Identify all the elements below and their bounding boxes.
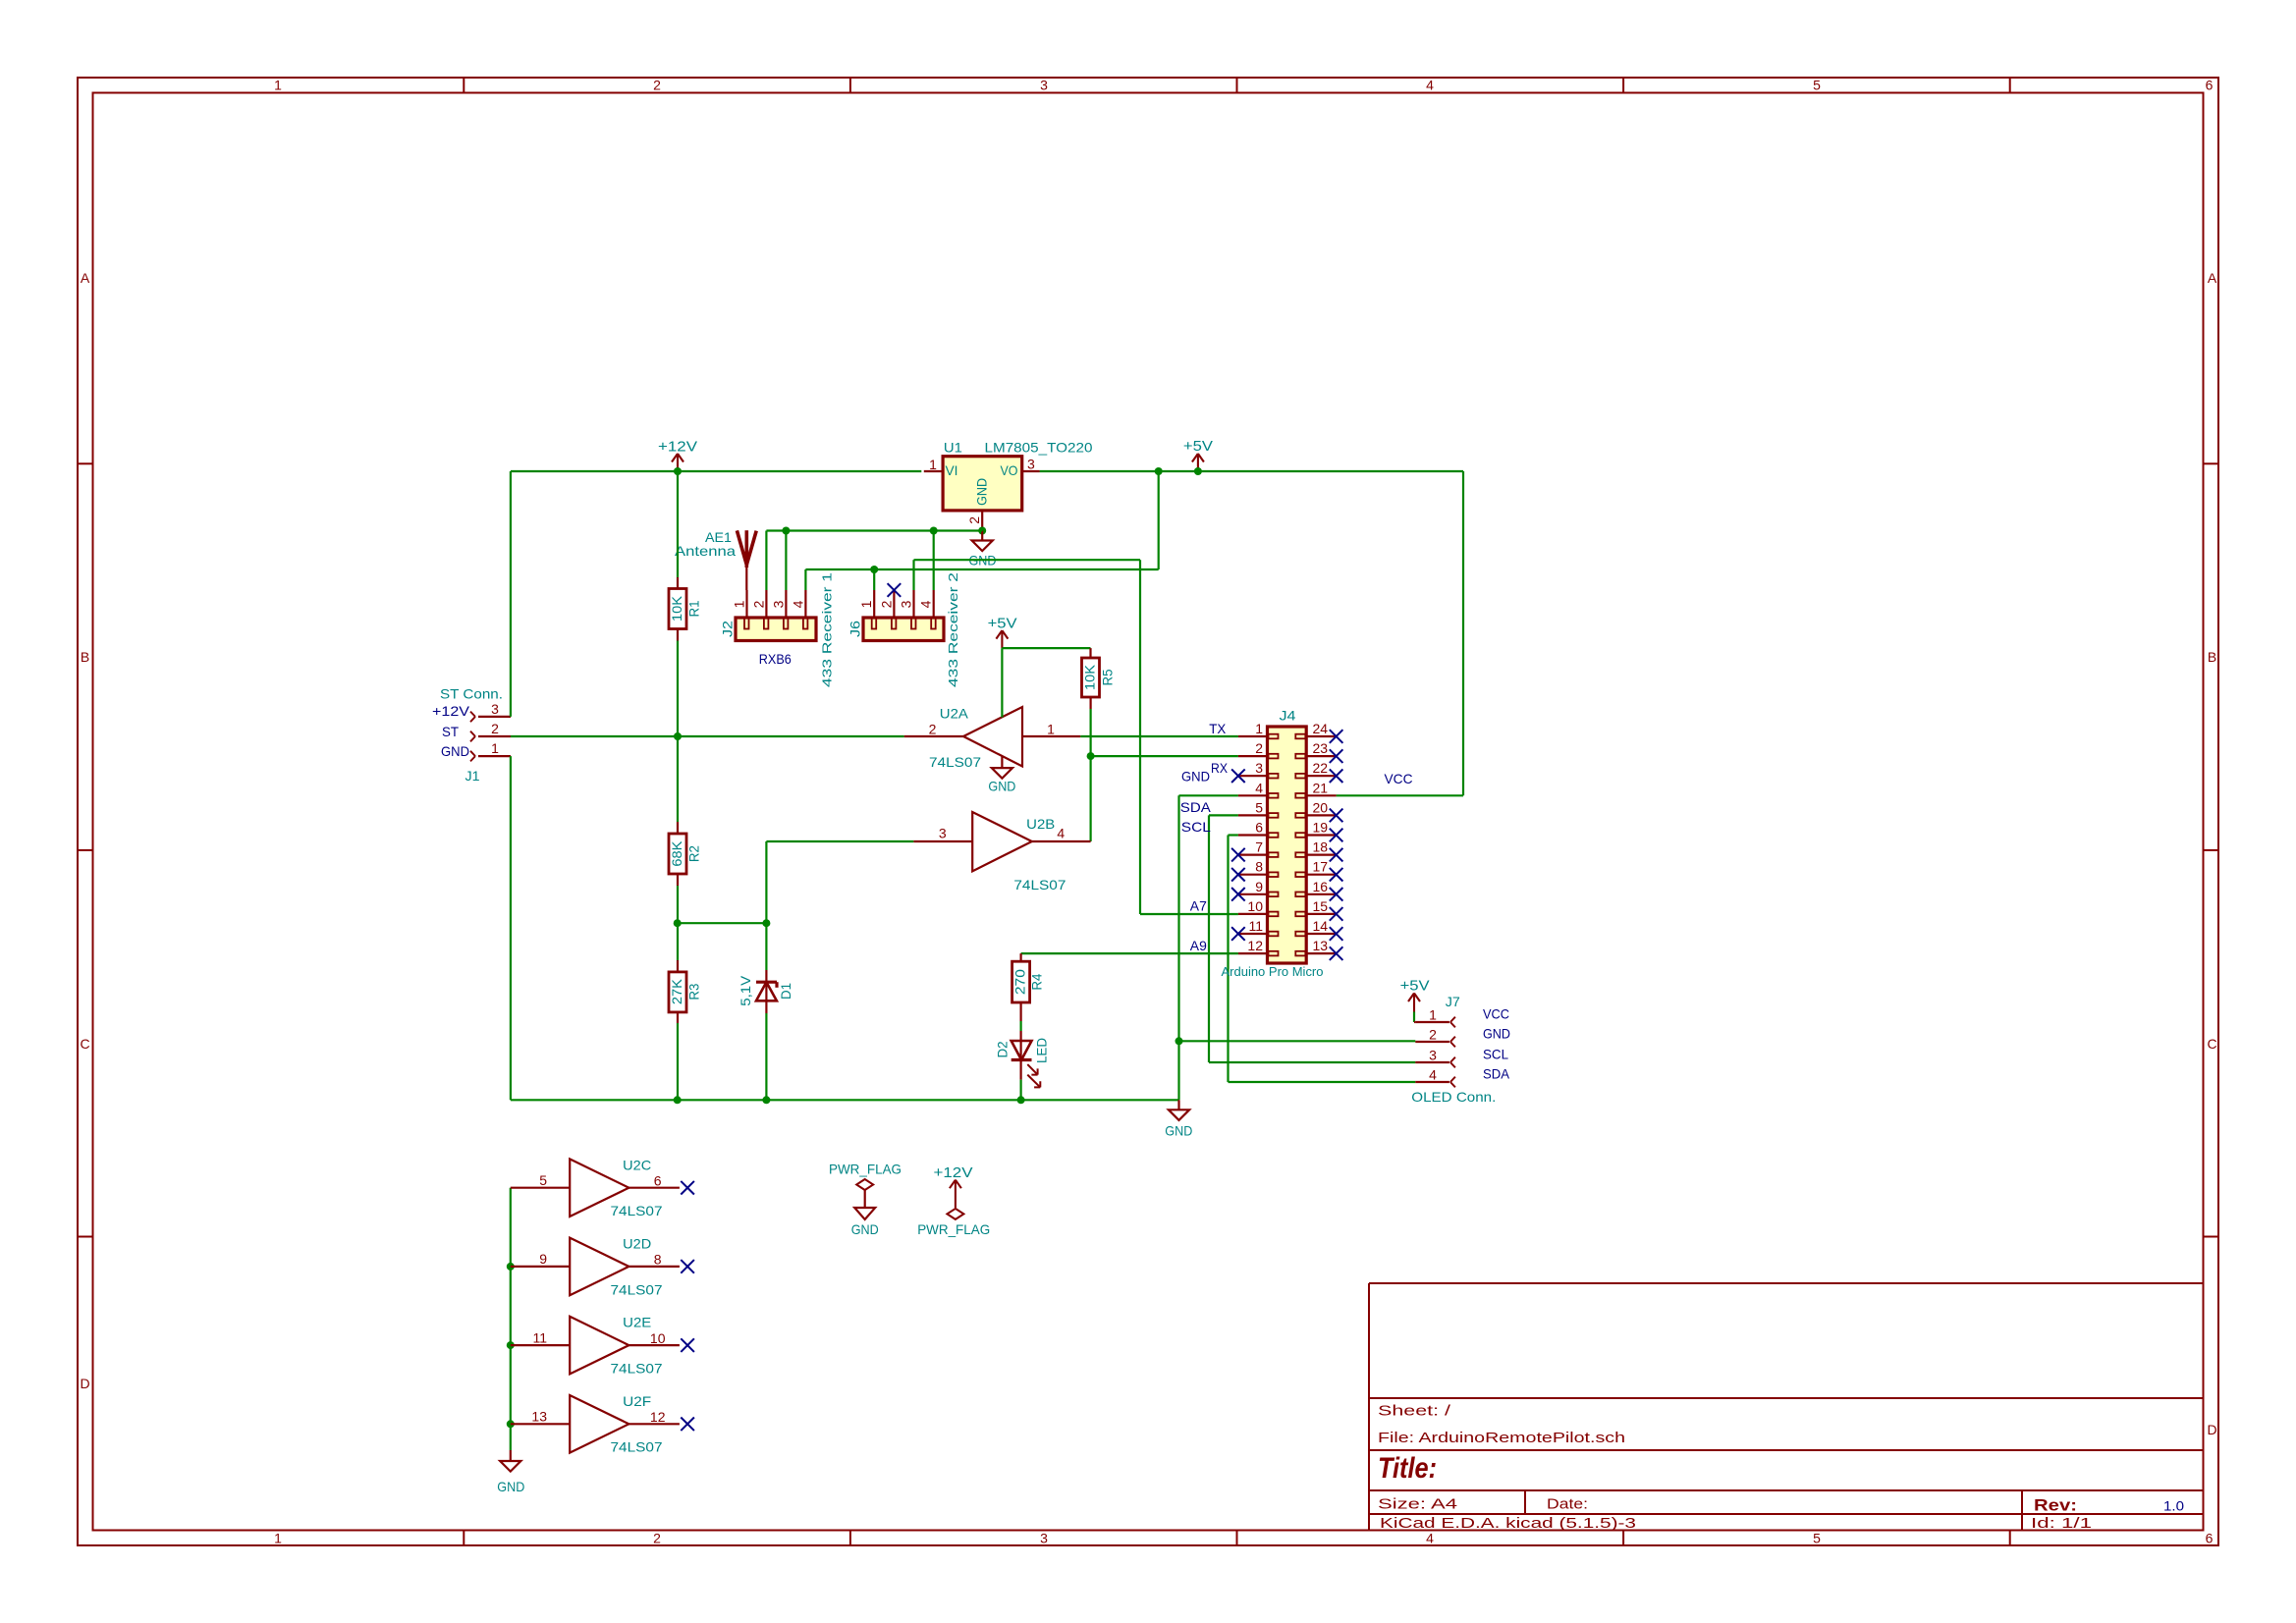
svg-text:1: 1 bbox=[1047, 721, 1055, 736]
svg-text:J4: J4 bbox=[1280, 708, 1296, 724]
svg-text:74LS07: 74LS07 bbox=[611, 1281, 663, 1297]
svg-text:2: 2 bbox=[878, 600, 894, 608]
svg-text:17: 17 bbox=[1313, 859, 1329, 875]
svg-text:68K: 68K bbox=[669, 840, 684, 867]
svg-text:Arduino Pro Micro: Arduino Pro Micro bbox=[1222, 964, 1324, 979]
svg-text:21: 21 bbox=[1313, 780, 1329, 795]
svg-text:5: 5 bbox=[1813, 1531, 1821, 1546]
svg-text:74LS07: 74LS07 bbox=[929, 754, 981, 770]
svg-text:LM7805_TO220: LM7805_TO220 bbox=[985, 439, 1093, 455]
svg-text:433 Receiver 2: 433 Receiver 2 bbox=[946, 572, 960, 687]
svg-text:6: 6 bbox=[2206, 78, 2214, 93]
svg-text:4: 4 bbox=[1426, 78, 1434, 93]
svg-text:4: 4 bbox=[1426, 1531, 1434, 1546]
svg-text:16: 16 bbox=[1313, 879, 1329, 894]
svg-text:24: 24 bbox=[1313, 721, 1329, 736]
svg-text:J6: J6 bbox=[847, 621, 863, 637]
svg-text:R4: R4 bbox=[1029, 973, 1045, 990]
svg-text:Sheet: /: Sheet: / bbox=[1378, 1402, 1451, 1419]
svg-text:GND: GND bbox=[851, 1221, 879, 1237]
svg-text:U2F: U2F bbox=[623, 1393, 651, 1409]
svg-text:KiCad E.D.A. kicad (5.1.5)-3: KiCad E.D.A. kicad (5.1.5)-3 bbox=[1380, 1515, 1636, 1532]
svg-text:U1: U1 bbox=[944, 439, 962, 455]
svg-text:D1: D1 bbox=[778, 983, 793, 1000]
svg-text:Size: A4: Size: A4 bbox=[1378, 1495, 1457, 1512]
svg-text:22: 22 bbox=[1313, 760, 1329, 776]
svg-text:10: 10 bbox=[1247, 898, 1263, 914]
svg-text:Antenna: Antenna bbox=[675, 543, 736, 559]
svg-text:74LS07: 74LS07 bbox=[611, 1203, 663, 1218]
svg-text:3: 3 bbox=[491, 701, 499, 717]
svg-text:3: 3 bbox=[1027, 457, 1035, 472]
svg-text:270: 270 bbox=[1012, 969, 1028, 995]
svg-text:7: 7 bbox=[1255, 839, 1263, 855]
svg-text:ST Conn.: ST Conn. bbox=[440, 686, 503, 702]
svg-text:R2: R2 bbox=[686, 845, 702, 862]
svg-text:1: 1 bbox=[274, 78, 282, 93]
svg-text:TX: TX bbox=[1209, 721, 1227, 736]
svg-text:4: 4 bbox=[1057, 826, 1065, 841]
svg-text:13: 13 bbox=[1313, 938, 1329, 953]
svg-text:B: B bbox=[2208, 649, 2216, 665]
svg-text:Id: 1/1: Id: 1/1 bbox=[2031, 1515, 2092, 1532]
svg-text:12: 12 bbox=[1247, 938, 1263, 953]
svg-text:U2C: U2C bbox=[623, 1157, 651, 1172]
svg-text:SCL: SCL bbox=[1181, 819, 1211, 835]
svg-text:1.0: 1.0 bbox=[2163, 1498, 2184, 1514]
svg-text:GND: GND bbox=[1181, 768, 1210, 784]
svg-text:12: 12 bbox=[650, 1409, 666, 1425]
svg-text:A7: A7 bbox=[1190, 898, 1207, 914]
svg-text:4: 4 bbox=[918, 600, 934, 608]
svg-text:J7: J7 bbox=[1446, 994, 1460, 1009]
svg-text:9: 9 bbox=[1255, 879, 1263, 894]
svg-text:6: 6 bbox=[654, 1173, 662, 1189]
svg-text:Rev:: Rev: bbox=[2034, 1496, 2077, 1515]
svg-text:8: 8 bbox=[1255, 859, 1263, 875]
svg-text:D: D bbox=[2207, 1422, 2216, 1437]
svg-text:18: 18 bbox=[1313, 839, 1329, 855]
svg-text:1: 1 bbox=[491, 740, 499, 756]
svg-text:6: 6 bbox=[2206, 1531, 2214, 1546]
svg-text:D2: D2 bbox=[995, 1041, 1011, 1057]
svg-text:OLED Conn.: OLED Conn. bbox=[1411, 1089, 1496, 1105]
svg-text:10K: 10K bbox=[1082, 664, 1098, 690]
svg-text:A9: A9 bbox=[1190, 938, 1207, 953]
svg-text:U2A: U2A bbox=[940, 706, 969, 722]
svg-text:3: 3 bbox=[1040, 1531, 1048, 1546]
svg-text:A: A bbox=[81, 270, 90, 286]
svg-text:+5V: +5V bbox=[988, 615, 1017, 631]
svg-text:3: 3 bbox=[1040, 78, 1048, 93]
svg-text:1: 1 bbox=[732, 600, 747, 608]
svg-text:+5V: +5V bbox=[1183, 438, 1213, 455]
svg-text:C: C bbox=[2207, 1036, 2216, 1052]
svg-text:3: 3 bbox=[939, 826, 947, 841]
svg-text:2: 2 bbox=[929, 721, 937, 736]
svg-text:1: 1 bbox=[929, 457, 937, 472]
svg-text:R5: R5 bbox=[1100, 669, 1116, 685]
svg-text:433 Receiver 1: 433 Receiver 1 bbox=[820, 572, 835, 687]
svg-text:74LS07: 74LS07 bbox=[1013, 877, 1066, 893]
svg-text:GND: GND bbox=[974, 478, 990, 506]
svg-text:LED: LED bbox=[1034, 1038, 1050, 1063]
svg-text:+12V: +12V bbox=[934, 1164, 973, 1181]
svg-text:20: 20 bbox=[1313, 799, 1329, 815]
svg-text:13: 13 bbox=[531, 1409, 547, 1425]
svg-text:SDA: SDA bbox=[1180, 799, 1212, 815]
svg-text:74LS07: 74LS07 bbox=[611, 1361, 663, 1377]
svg-text:10K: 10K bbox=[669, 595, 684, 622]
svg-text:RXB6: RXB6 bbox=[759, 651, 792, 667]
svg-text:GND: GND bbox=[497, 1479, 524, 1494]
svg-text:B: B bbox=[81, 649, 89, 665]
svg-text:3: 3 bbox=[1429, 1048, 1437, 1063]
svg-text:2: 2 bbox=[491, 721, 499, 736]
svg-text:9: 9 bbox=[539, 1251, 547, 1267]
svg-text:10: 10 bbox=[650, 1330, 666, 1346]
svg-text:+12V: +12V bbox=[658, 438, 697, 455]
svg-text:23: 23 bbox=[1313, 740, 1329, 756]
svg-text:1: 1 bbox=[1429, 1007, 1437, 1023]
svg-text:4: 4 bbox=[1429, 1067, 1437, 1083]
svg-text:GND: GND bbox=[441, 743, 469, 759]
svg-text:R1: R1 bbox=[686, 600, 702, 617]
svg-text:VI: VI bbox=[946, 462, 958, 478]
svg-text:+5V: +5V bbox=[1400, 977, 1430, 994]
svg-text:74LS07: 74LS07 bbox=[611, 1439, 663, 1455]
svg-text:2: 2 bbox=[1255, 740, 1263, 756]
svg-text:GND: GND bbox=[988, 778, 1015, 793]
svg-text:GND: GND bbox=[1165, 1123, 1192, 1139]
svg-text:PWR_FLAG: PWR_FLAG bbox=[917, 1221, 990, 1237]
svg-text:5: 5 bbox=[1813, 78, 1821, 93]
svg-text:3: 3 bbox=[899, 600, 914, 608]
svg-text:Title:: Title: bbox=[1378, 1452, 1437, 1485]
svg-text:3: 3 bbox=[1255, 760, 1263, 776]
svg-text:2: 2 bbox=[966, 516, 982, 524]
svg-text:U2D: U2D bbox=[623, 1236, 651, 1252]
svg-text:15: 15 bbox=[1313, 898, 1329, 914]
svg-text:2: 2 bbox=[653, 1531, 661, 1546]
svg-text:RX: RX bbox=[1211, 760, 1229, 776]
svg-text:GND: GND bbox=[1483, 1026, 1510, 1042]
svg-text:1: 1 bbox=[858, 600, 874, 608]
svg-text:14: 14 bbox=[1313, 918, 1329, 934]
svg-text:1: 1 bbox=[274, 1531, 282, 1546]
svg-text:4: 4 bbox=[790, 600, 805, 608]
svg-text:J1: J1 bbox=[465, 768, 480, 784]
svg-text:SCL: SCL bbox=[1483, 1047, 1508, 1062]
svg-text:VCC: VCC bbox=[1483, 1006, 1509, 1022]
svg-text:2: 2 bbox=[653, 78, 661, 93]
svg-text:J2: J2 bbox=[720, 621, 736, 637]
svg-text:U2B: U2B bbox=[1026, 816, 1055, 832]
svg-text:5,1V: 5,1V bbox=[738, 975, 753, 1006]
svg-text:3: 3 bbox=[770, 600, 786, 608]
svg-text:19: 19 bbox=[1313, 820, 1329, 836]
svg-text:11: 11 bbox=[1248, 918, 1263, 934]
svg-text:Date:: Date: bbox=[1547, 1495, 1588, 1512]
svg-text:+12V: +12V bbox=[432, 703, 470, 719]
svg-text:U2E: U2E bbox=[623, 1315, 651, 1330]
svg-text:A: A bbox=[2208, 270, 2217, 286]
svg-text:PWR_FLAG: PWR_FLAG bbox=[829, 1162, 902, 1177]
svg-text:5: 5 bbox=[539, 1172, 547, 1188]
svg-text:2: 2 bbox=[750, 600, 766, 608]
svg-text:VCC: VCC bbox=[1385, 771, 1413, 786]
svg-text:R3: R3 bbox=[686, 983, 702, 1000]
svg-text:5: 5 bbox=[1255, 799, 1263, 815]
svg-text:6: 6 bbox=[1255, 820, 1263, 836]
svg-text:VO: VO bbox=[1001, 462, 1018, 478]
svg-text:27K: 27K bbox=[669, 978, 684, 1004]
svg-text:11: 11 bbox=[532, 1329, 547, 1345]
svg-text:SDA: SDA bbox=[1483, 1066, 1510, 1082]
svg-text:1: 1 bbox=[1255, 721, 1263, 736]
svg-text:ST: ST bbox=[442, 724, 459, 739]
svg-text:File: ArduinoRemotePilot.sch: File: ArduinoRemotePilot.sch bbox=[1378, 1430, 1625, 1446]
svg-text:C: C bbox=[80, 1036, 89, 1052]
svg-text:8: 8 bbox=[654, 1252, 662, 1268]
svg-text:2: 2 bbox=[1429, 1027, 1437, 1043]
svg-text:D: D bbox=[80, 1376, 89, 1391]
svg-text:4: 4 bbox=[1255, 780, 1263, 795]
